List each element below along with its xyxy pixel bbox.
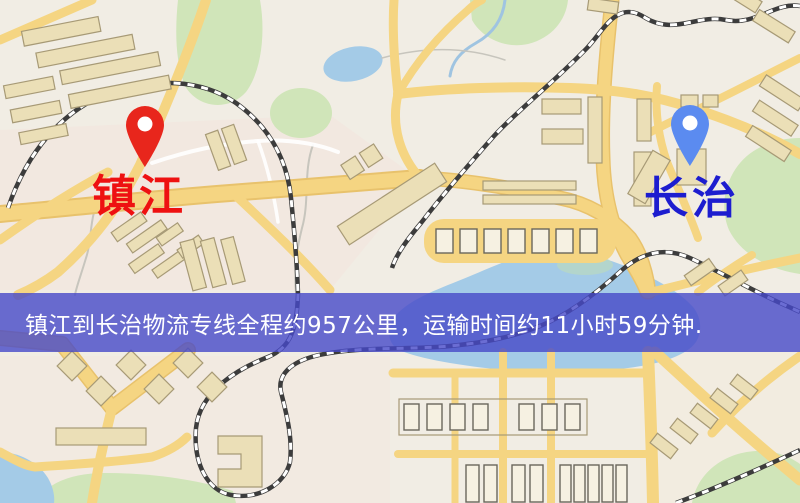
boulevard-units <box>436 229 597 253</box>
origin-pin-icon[interactable] <box>122 104 168 168</box>
destination-city-label: 长治 <box>644 177 740 221</box>
origin-city-label: 镇江 <box>92 175 186 219</box>
route-info-text: 镇江到长治物流专线全程约957公里，运输时间约11小时59分钟. <box>25 306 703 340</box>
destination-pin-icon[interactable] <box>667 103 713 167</box>
route-info-banner: 镇江到长治物流专线全程约957公里，运输时间约11小时59分钟. <box>0 293 800 352</box>
map-canvas[interactable] <box>0 0 800 503</box>
map-screenshot: 镇江 长治 镇江到长治物流专线全程约957公里，运输时间约11小时59分钟. <box>0 0 800 503</box>
